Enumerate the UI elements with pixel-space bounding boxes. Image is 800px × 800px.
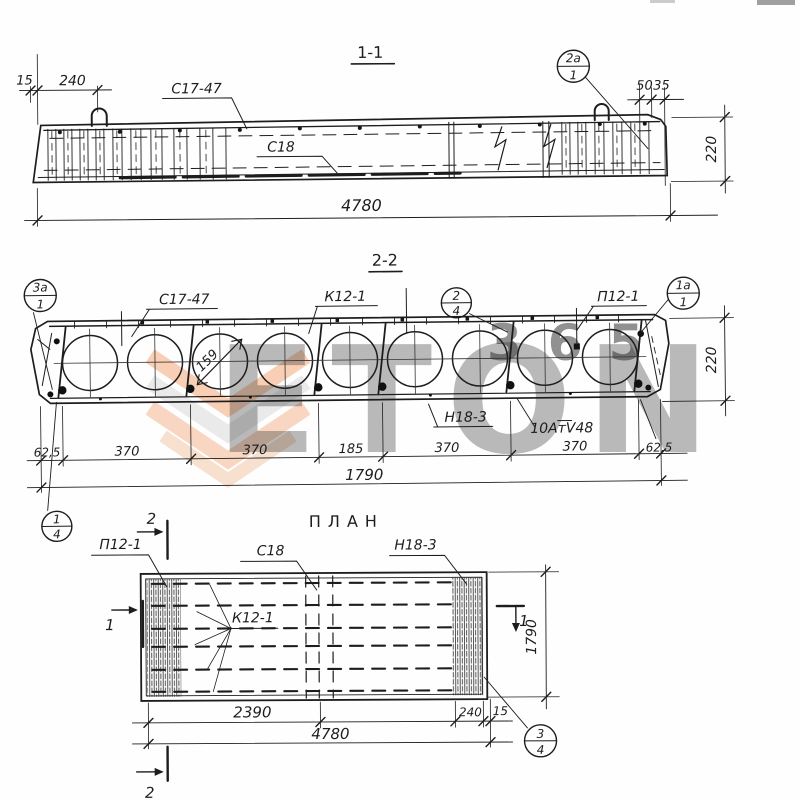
plan-title: ПЛАН (309, 512, 384, 531)
svg-text:4: 4 (53, 527, 61, 541)
dim-4780-section1: 4780 (24, 183, 717, 226)
svg-text:370: 370 (115, 444, 140, 459)
svg-text:220: 220 (704, 136, 720, 163)
svg-text:50: 50 (636, 79, 653, 94)
svg-text:4780: 4780 (311, 725, 349, 743)
section-marker-2-top: 2 (137, 510, 167, 559)
svg-text:4: 4 (453, 304, 461, 318)
svg-text:15: 15 (493, 704, 508, 718)
callout-1-4: 1 4 (40, 402, 72, 541)
svg-text:2: 2 (145, 784, 155, 800)
svg-text:К12-1: К12-1 (324, 289, 366, 305)
svg-text:С17-47: С17-47 (159, 292, 210, 309)
svg-text:370: 370 (243, 443, 268, 458)
svg-text:Н18-3: Н18-3 (394, 537, 436, 553)
svg-text:2: 2 (147, 510, 157, 528)
svg-text:П12-1: П12-1 (99, 537, 141, 553)
drawing-canvas: ETON 365 1-1 (0, 0, 800, 800)
label-c18: С18 (257, 139, 337, 174)
svg-text:370: 370 (563, 439, 588, 454)
dim-bottom-plan: 2390 240 15 4780 (132, 699, 512, 749)
section-marker-2-bottom: 2 (137, 747, 168, 800)
svg-text:С18: С18 (257, 543, 285, 559)
svg-text:1790: 1790 (345, 466, 383, 484)
svg-text:4780: 4780 (341, 196, 382, 215)
mesh-zone-left (147, 579, 182, 697)
svg-text:2390: 2390 (233, 703, 271, 721)
dim-220-section1: 220 (671, 105, 734, 193)
svg-text:1: 1 (679, 295, 687, 309)
svg-text:С17-47: С17-47 (171, 81, 222, 97)
svg-text:Н18-3: Н18-3 (444, 409, 486, 425)
svg-text:185: 185 (339, 442, 364, 457)
svg-text:15: 15 (16, 73, 33, 88)
svg-text:П12-1: П12-1 (597, 289, 639, 305)
break-marks (495, 124, 555, 169)
svg-text:1а: 1а (676, 278, 691, 292)
label-c17-47-section2: С17-47 (121, 292, 218, 346)
svg-text:62,5: 62,5 (34, 445, 61, 459)
label-k12-1-plan: К12-1 (195, 584, 279, 691)
section-1-1: 1-1 15 240 (16, 40, 734, 227)
section-1-1-title: 1-1 (357, 43, 383, 62)
svg-text:К12-1: К12-1 (232, 610, 274, 626)
lifting-hook-left (92, 108, 107, 126)
svg-text:10АтV48: 10АтV48 (530, 420, 593, 437)
svg-text:240: 240 (459, 705, 482, 719)
svg-text:2: 2 (452, 289, 460, 303)
svg-text:3: 3 (537, 727, 545, 741)
svg-text:1: 1 (570, 68, 578, 82)
svg-text:2а: 2а (566, 51, 581, 65)
drawing-sheet: ETON 365 1-1 (0, 0, 800, 800)
svg-text:1: 1 (53, 512, 61, 526)
svg-text:С18: С18 (267, 139, 295, 155)
mesh-zone-right (452, 577, 484, 695)
k12-bar-rows (152, 582, 453, 692)
svg-text:1: 1 (105, 616, 115, 634)
svg-text:4: 4 (537, 743, 545, 757)
svg-text:240: 240 (59, 73, 86, 89)
svg-text:370: 370 (435, 441, 460, 456)
svg-text:35: 35 (653, 78, 670, 93)
section-marker-1-left: 1 (105, 601, 143, 647)
plan-view: ПЛАН П12-1 С18 Н18-3 2 (91, 508, 560, 800)
section-2-2-title: 2-2 (372, 250, 398, 269)
dim-15-240: 15 240 (16, 54, 112, 125)
dim-1790-plan: 1790 (487, 565, 560, 709)
callout-3a-1: 3а 1 (24, 279, 57, 389)
svg-text:1: 1 (36, 297, 44, 311)
c18-mesh-lines (306, 576, 334, 698)
svg-text:1790: 1790 (524, 619, 540, 655)
lifting-hook-right (595, 104, 609, 120)
svg-text:220: 220 (704, 346, 720, 373)
svg-text:3а: 3а (33, 280, 48, 294)
scan-artifacts (650, 0, 795, 5)
svg-text:62,5: 62,5 (646, 440, 673, 454)
